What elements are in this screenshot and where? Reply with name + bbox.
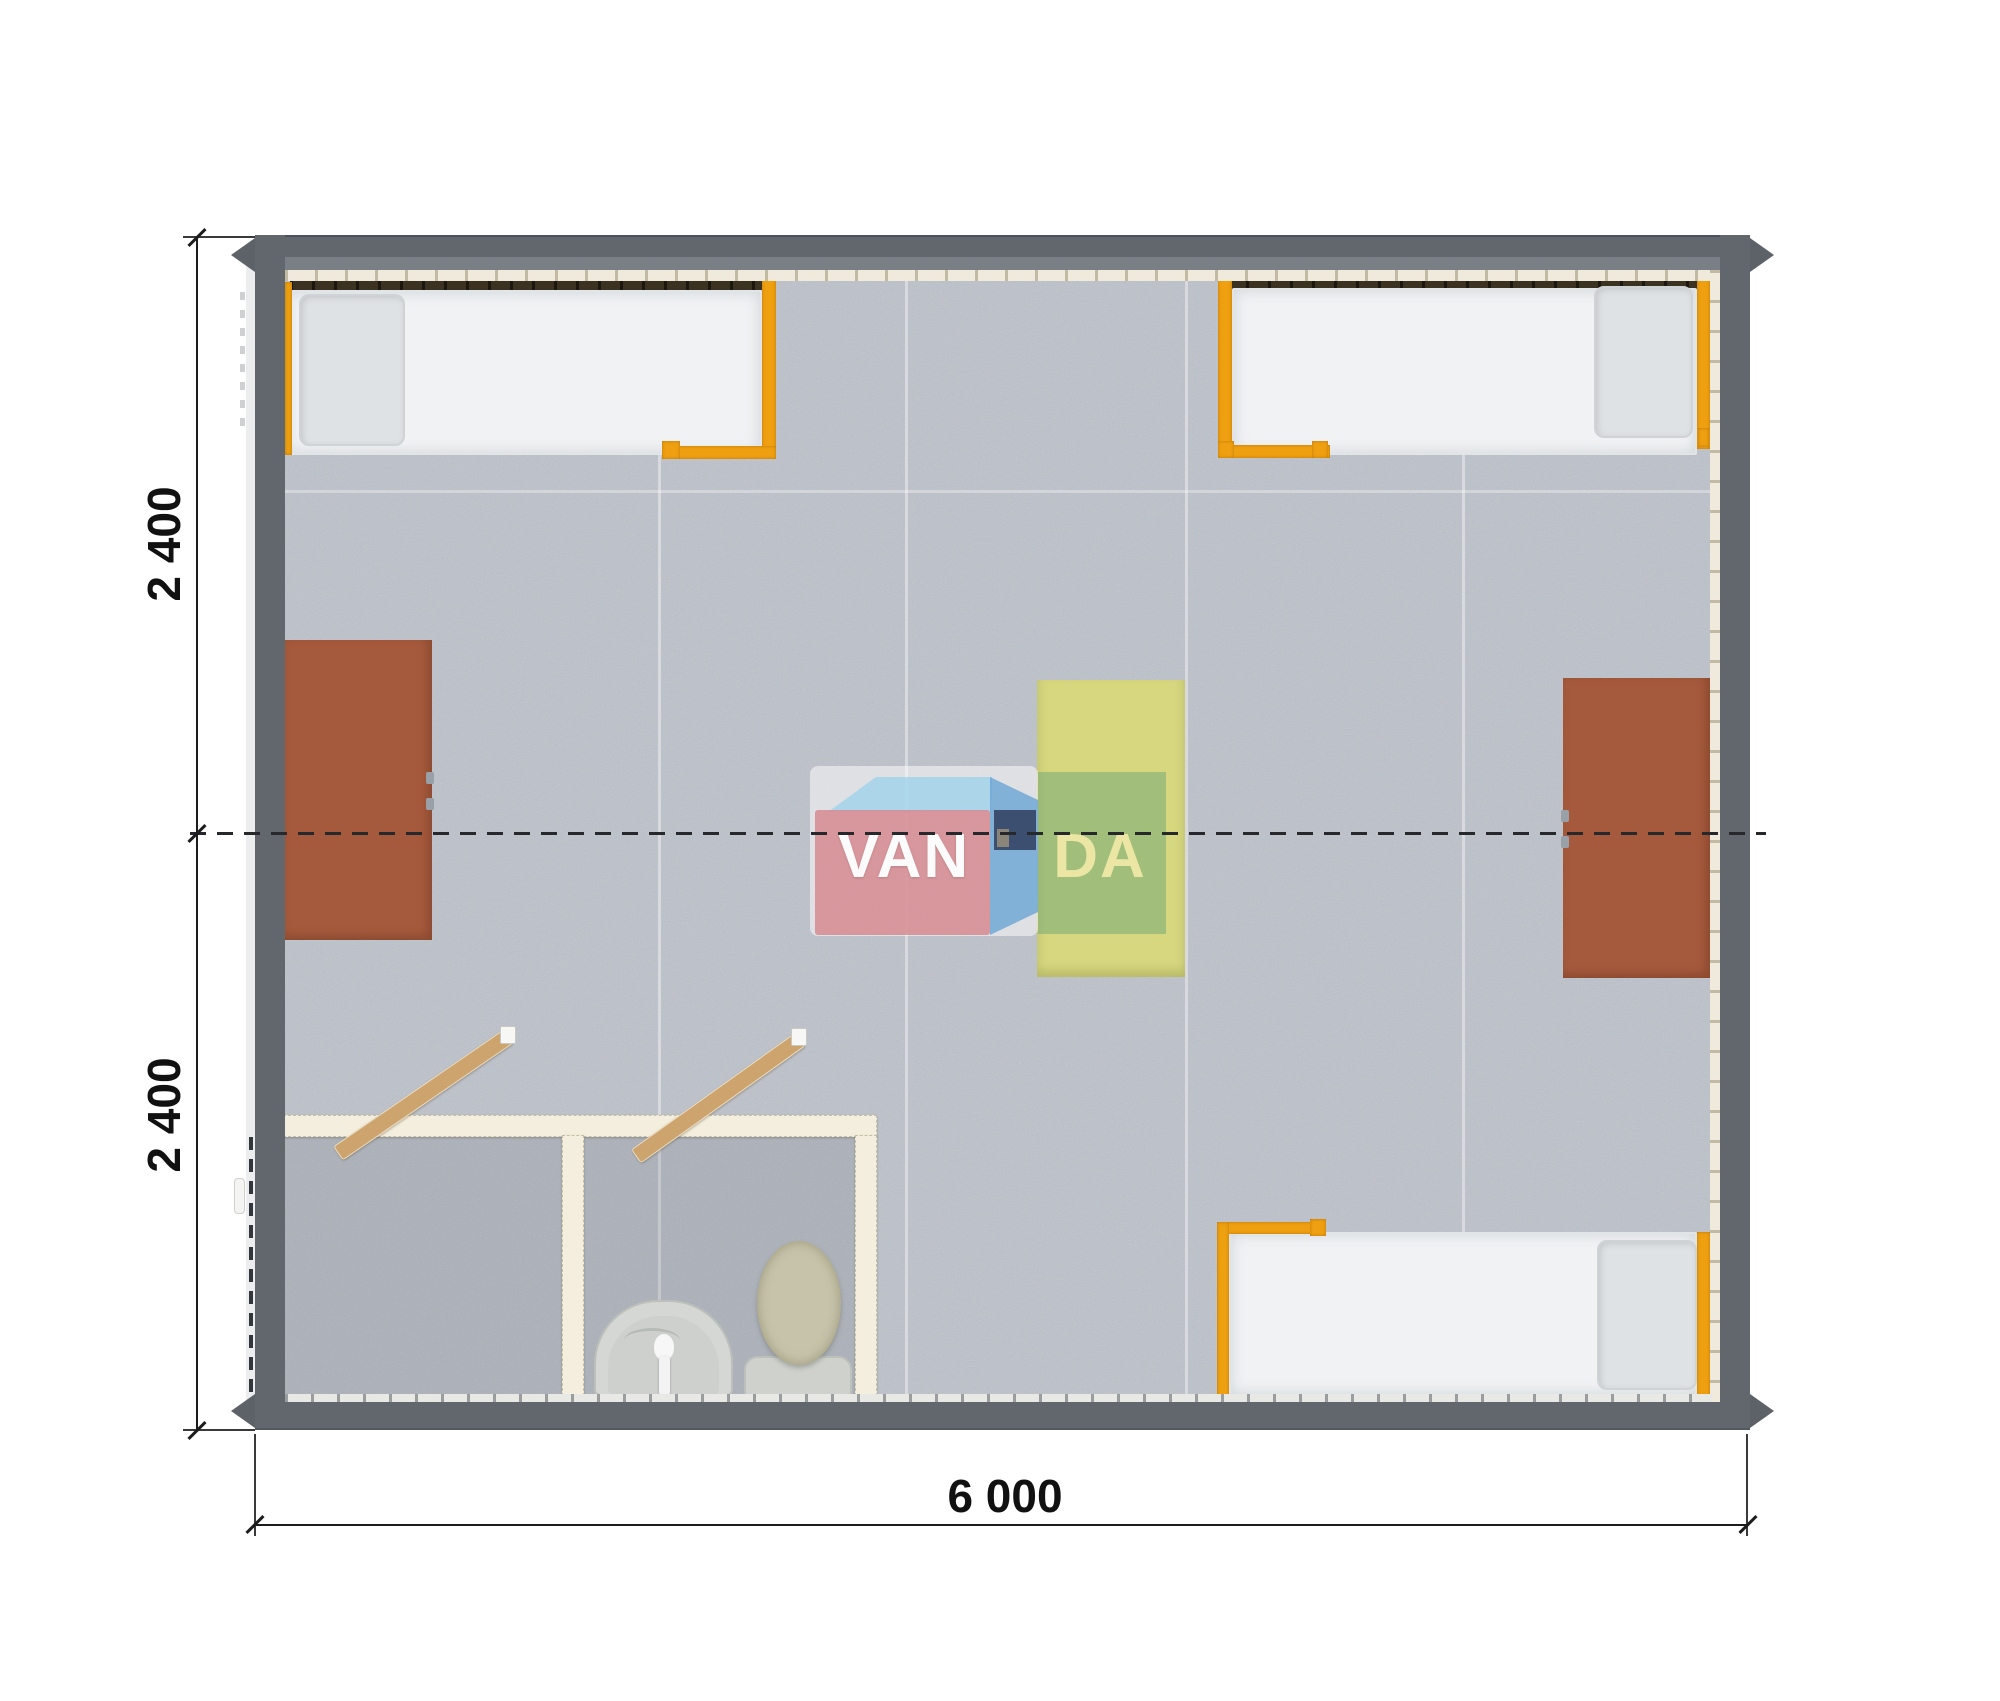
door-end-cap — [791, 1028, 807, 1046]
desk-handle — [1561, 836, 1569, 848]
dimension-label-width-bottom: 2 400 — [141, 1035, 187, 1195]
desk-handle — [426, 772, 434, 784]
door-end-cap — [500, 1026, 516, 1044]
bed-frame-bar — [1217, 1222, 1229, 1398]
bed-frame-bar — [762, 272, 776, 458]
bed-frame-corner — [1312, 441, 1328, 458]
bed-frame-corner — [1310, 1219, 1326, 1236]
corner-casting-icon — [231, 238, 255, 272]
bathroom-wall-divider — [562, 1135, 584, 1396]
entry-door-handle — [234, 1178, 245, 1214]
bed-frame-bar — [285, 282, 292, 455]
faucet-stem — [659, 1356, 670, 1396]
logo-navy-block — [994, 810, 1036, 850]
bed-top-left — [285, 272, 776, 460]
extension-line — [1746, 1434, 1748, 1536]
bed-frame-corner — [1218, 441, 1234, 458]
bed-pillow — [1594, 286, 1693, 438]
floor-seam — [285, 490, 1710, 493]
toilet — [757, 1241, 841, 1365]
floor-plan-canvas: VAN DA 2 400 2 400 6 000 — [0, 0, 2000, 1701]
logo-text-van: VAN — [820, 826, 988, 888]
bed-frame-bar — [1217, 1222, 1323, 1234]
module-centerline — [190, 832, 1766, 835]
floor-seam — [1185, 281, 1188, 1394]
corner-casting-icon — [231, 1394, 255, 1428]
dimension-line-bottom — [255, 1524, 1748, 1526]
bed-pillow — [299, 294, 405, 446]
window-marks-left-wall — [240, 282, 245, 432]
wall-liner-right — [1710, 270, 1720, 1402]
bed-frame-corner — [662, 441, 680, 459]
exterior-wall-top-lip — [258, 257, 1747, 270]
dimension-label-length: 6 000 — [925, 1473, 1085, 1519]
exterior-wall-bottom — [255, 1402, 1750, 1430]
bed-frame-bar — [1697, 1232, 1710, 1396]
logo-text-da: DA — [1040, 826, 1160, 888]
entry-door-dashed-line — [249, 1137, 253, 1396]
bed-frame-bar — [666, 446, 776, 459]
bed-wall-rail — [290, 280, 768, 290]
bed-pillow — [1597, 1240, 1697, 1390]
bed-frame-corner — [1698, 428, 1709, 447]
bed-top-right — [1218, 272, 1710, 460]
corner-casting-icon — [1750, 238, 1774, 272]
desk-left — [285, 640, 432, 940]
desk-handle — [426, 798, 434, 810]
corner-casting-icon — [1750, 1394, 1774, 1428]
desk-handle — [1561, 810, 1569, 822]
wall-liner-bottom — [285, 1394, 1712, 1402]
wall-liner-top — [285, 270, 1712, 281]
bathroom-wall-right — [855, 1135, 877, 1396]
dimension-label-width-top: 2 400 — [141, 464, 187, 624]
desk-right — [1563, 678, 1710, 978]
bed-frame-bar — [1697, 277, 1710, 449]
bed-bottom-right — [1217, 1219, 1710, 1398]
bed-frame-bar — [1218, 272, 1232, 458]
shower-room-floor — [285, 1137, 562, 1396]
